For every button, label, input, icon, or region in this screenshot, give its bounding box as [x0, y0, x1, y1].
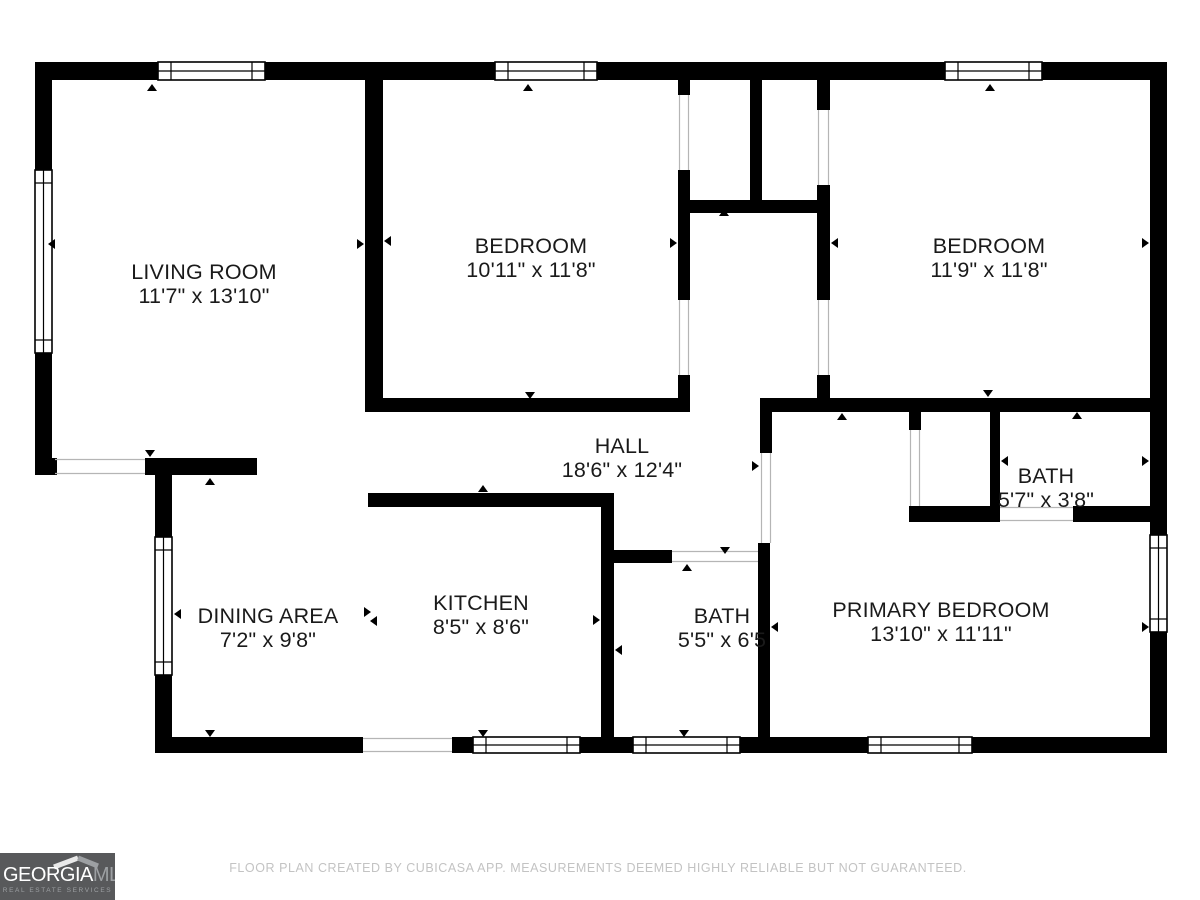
- room-label-bath-upper: BATH 5'7" x 3'8": [998, 464, 1094, 512]
- room-name: BATH: [678, 604, 766, 628]
- room-name: DINING AREA: [198, 604, 339, 628]
- room-name: BATH: [998, 464, 1094, 488]
- room-dimensions: 5'5" x 6'5: [678, 628, 766, 652]
- window-top-living: [158, 62, 265, 80]
- room-dimensions: 18'6" x 12'4": [562, 458, 683, 482]
- window-right-primary: [1150, 535, 1167, 632]
- room-name: BEDROOM: [466, 234, 595, 258]
- logo-text-georgia: GEORGIA: [3, 864, 93, 886]
- room-label-bedroom-middle: BEDROOM 10'11" x 11'8": [466, 234, 595, 282]
- room-name: BEDROOM: [930, 234, 1047, 258]
- georgia-mls-logo: GEORGIAMLS REAL ESTATE SERVICES: [0, 853, 115, 900]
- window-left-living: [35, 170, 52, 353]
- window-left-dining: [155, 537, 172, 675]
- room-name: PRIMARY BEDROOM: [832, 598, 1049, 622]
- room-name: LIVING ROOM: [131, 260, 277, 284]
- room-label-primary-bedroom: PRIMARY BEDROOM 13'10" x 11'11": [832, 598, 1049, 646]
- window-top-bedroom: [495, 62, 597, 80]
- floorplan-canvas: LIVING ROOM 11'7" x 13'10" BEDROOM 10'11…: [0, 0, 1200, 900]
- window-bottom-primary: [868, 737, 972, 753]
- room-name: HALL: [562, 434, 683, 458]
- disclaimer-text: FLOOR PLAN CREATED BY CUBICASA APP. MEAS…: [229, 861, 967, 875]
- room-name: KITCHEN: [433, 591, 529, 615]
- room-dimensions: 10'11" x 11'8": [466, 258, 595, 282]
- room-label-hall: HALL 18'6" x 12'4": [562, 434, 683, 482]
- room-dimensions: 7'2" x 9'8": [198, 628, 339, 652]
- room-dimensions: 8'5" x 8'6": [433, 615, 529, 639]
- room-dimensions: 13'10" x 11'11": [832, 622, 1049, 646]
- logo-wordmark: GEORGIAMLS: [3, 865, 115, 885]
- logo-text-mls: MLS: [93, 864, 115, 886]
- room-label-bath-lower: BATH 5'5" x 6'5: [678, 604, 766, 652]
- window-top-bedroom2: [945, 62, 1042, 80]
- room-label-living-room: LIVING ROOM 11'7" x 13'10": [131, 260, 277, 308]
- logo-tagline: REAL ESTATE SERVICES: [0, 887, 115, 894]
- room-dimensions: 11'7" x 13'10": [131, 284, 277, 308]
- room-dimensions: 5'7" x 3'8": [998, 488, 1094, 512]
- room-label-dining-area: DINING AREA 7'2" x 9'8": [198, 604, 339, 652]
- room-label-bedroom-right: BEDROOM 11'9" x 11'8": [930, 234, 1047, 282]
- room-label-kitchen: KITCHEN 8'5" x 8'6": [433, 591, 529, 639]
- window-bottom-bath: [633, 737, 740, 753]
- room-dimensions: 11'9" x 11'8": [930, 258, 1047, 282]
- window-bottom-kitchen: [473, 737, 580, 753]
